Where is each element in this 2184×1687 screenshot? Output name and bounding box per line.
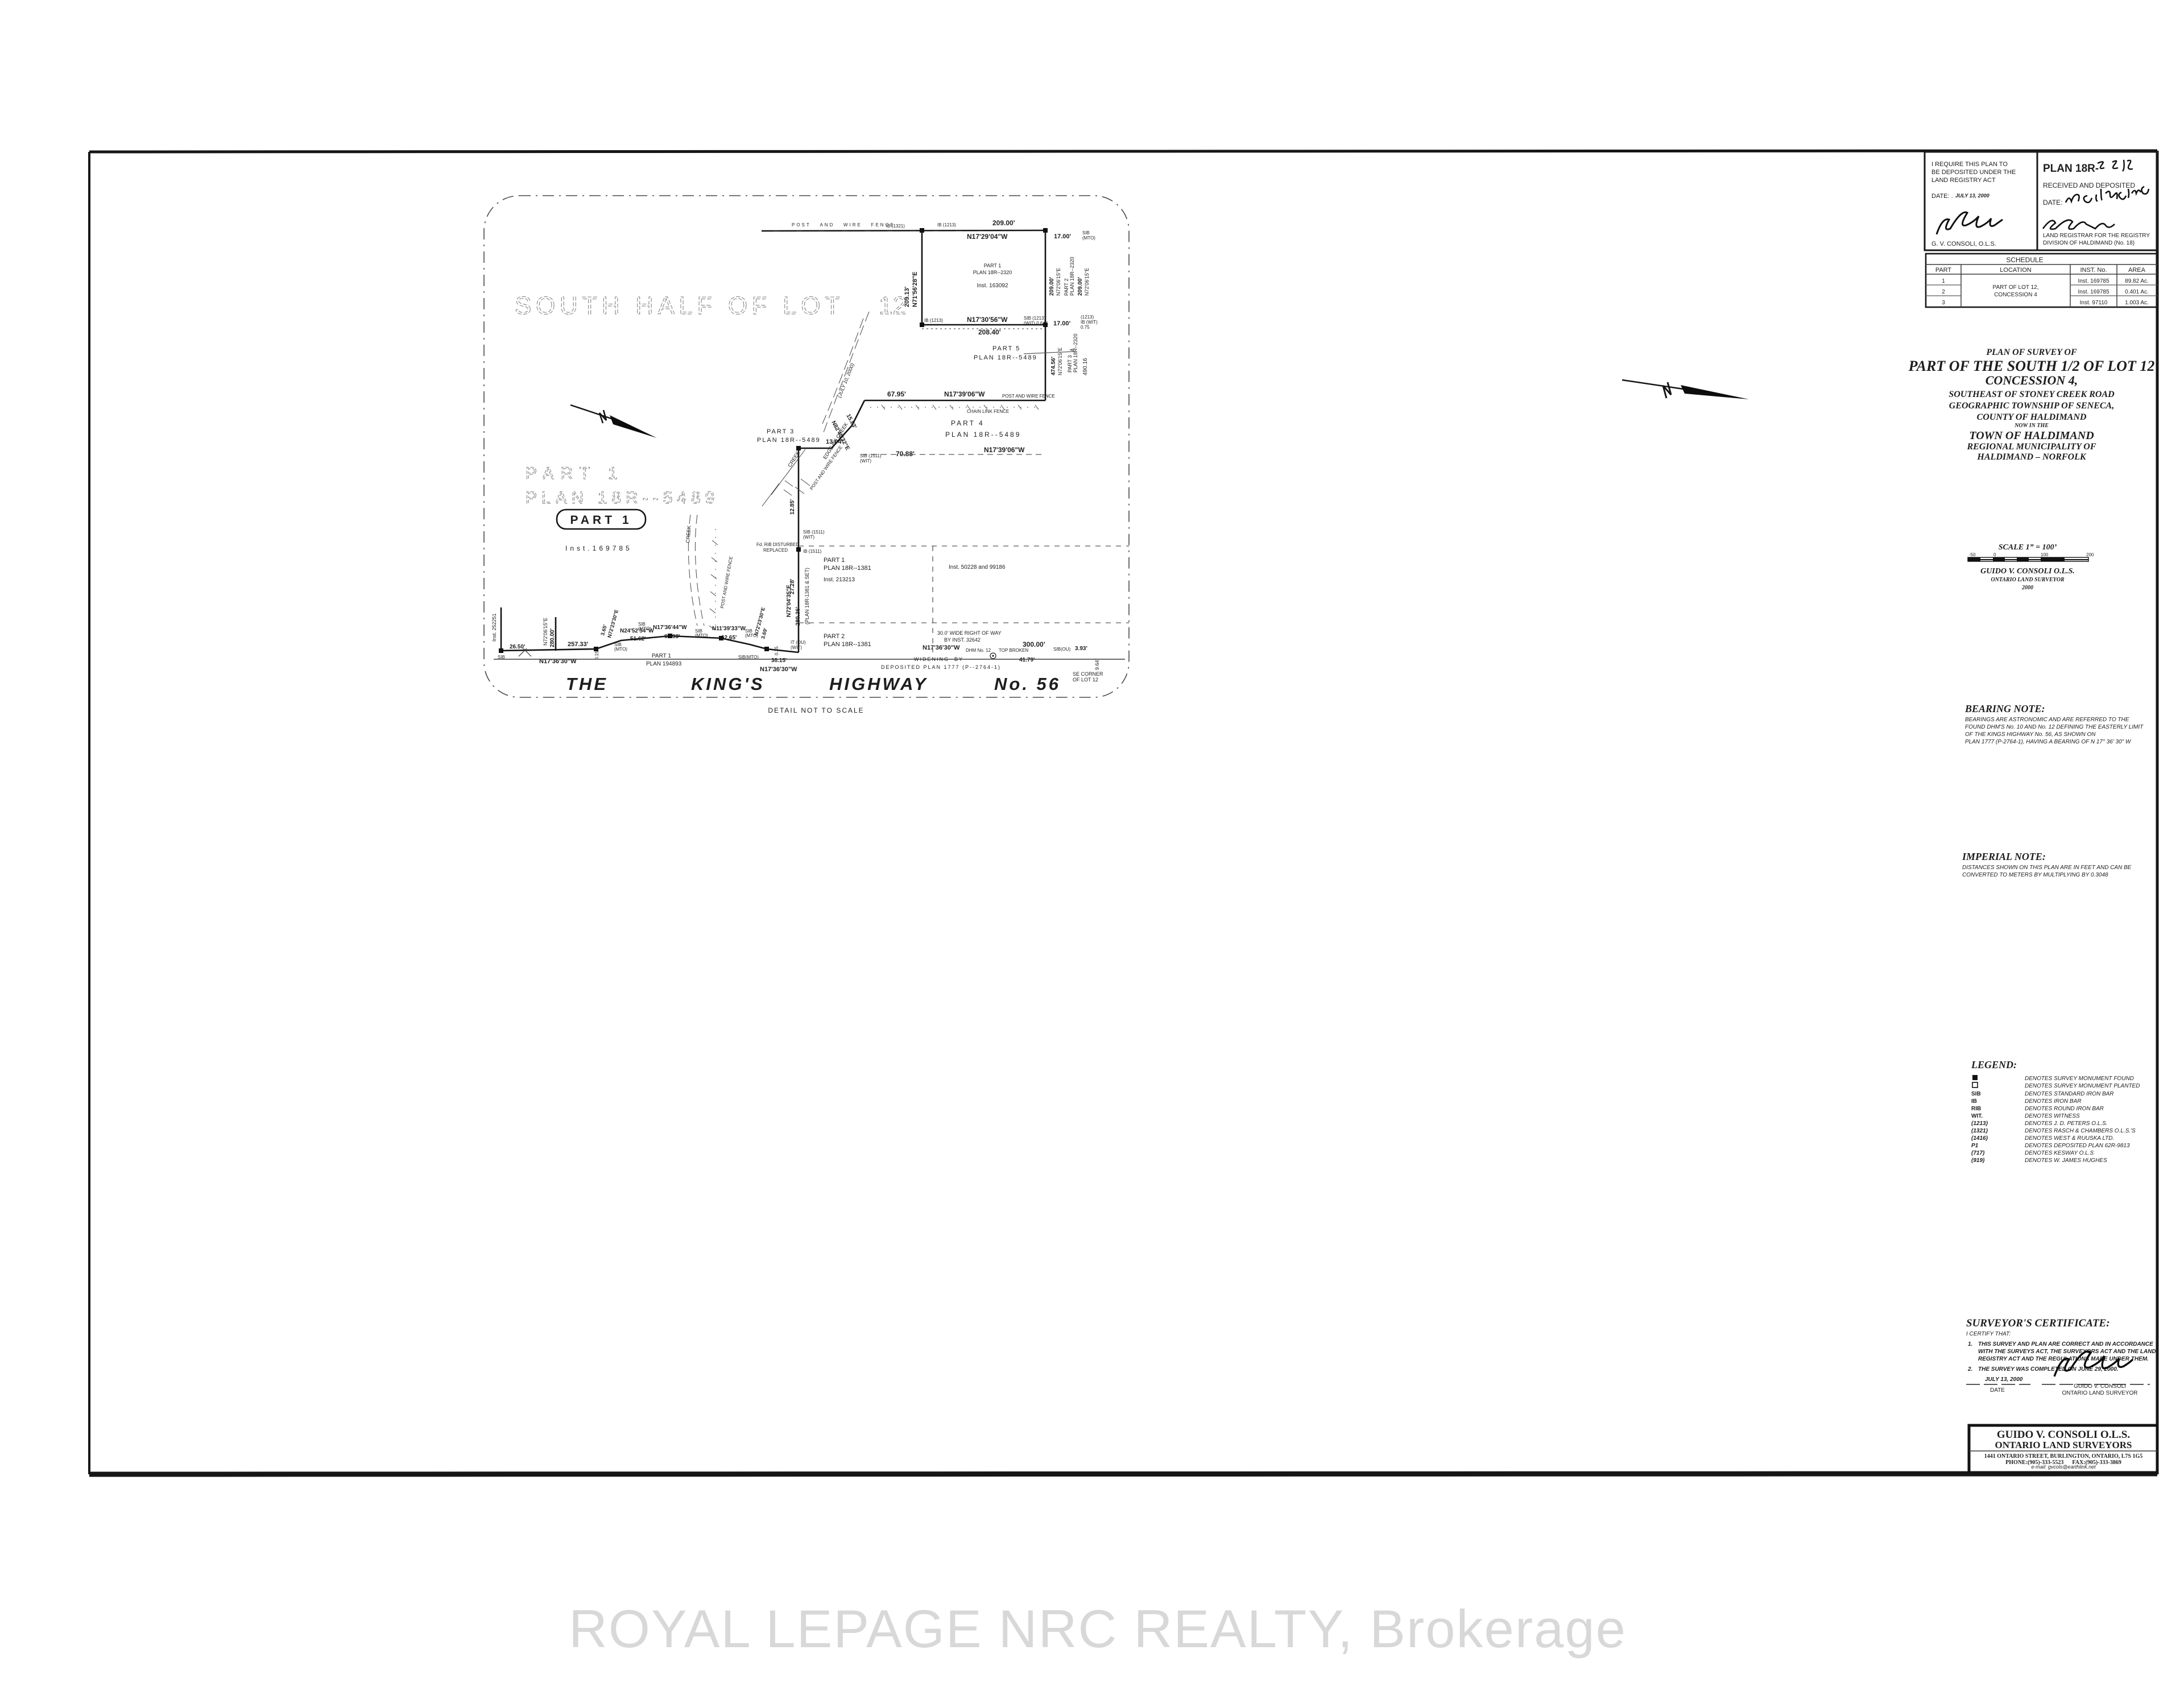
svg-text:9.64': 9.64' bbox=[1094, 659, 1100, 670]
svg-text:AREA: AREA bbox=[2128, 267, 2146, 274]
svg-text:IMPERIAL NOTE:: IMPERIAL NOTE: bbox=[1962, 851, 2046, 862]
svg-text:P1: P1 bbox=[1971, 1143, 1979, 1149]
svg-text:CONCESSION 4,: CONCESSION 4, bbox=[1986, 373, 2078, 387]
svg-text:IT (OU): IT (OU) bbox=[791, 640, 806, 645]
svg-text:PART 1: PART 1 bbox=[526, 464, 624, 483]
svg-text:PART 1: PART 1 bbox=[824, 557, 845, 564]
svg-text:SIB: SIB bbox=[1971, 1091, 1981, 1097]
svg-text:DENOTES W. JAMES HUGHES: DENOTES W. JAMES HUGHES bbox=[2025, 1157, 2107, 1164]
svg-text:NOW IN THE: NOW IN THE bbox=[2014, 423, 2049, 429]
svg-text:DENOTES IRON BAR: DENOTES IRON BAR bbox=[2025, 1098, 2081, 1105]
svg-text:LAND REGISTRAR FOR THE REGISTR: LAND REGISTRAR FOR THE REGISTRY bbox=[2043, 233, 2150, 239]
svg-text:474.56': 474.56' bbox=[1050, 357, 1057, 375]
svg-text:DENOTES WITNESS: DENOTES WITNESS bbox=[2025, 1113, 2080, 1119]
svg-text:WIT.: WIT. bbox=[1971, 1113, 1983, 1119]
svg-text:INST. No.: INST. No. bbox=[2080, 267, 2107, 274]
svg-text:PLAN 18R--2320: PLAN 18R--2320 bbox=[973, 270, 1012, 275]
svg-text:0: 0 bbox=[1993, 552, 1996, 557]
svg-text:THIS SURVEY AND PLAN ARE CORRE: THIS SURVEY AND PLAN ARE CORRECT AND IN … bbox=[1978, 1341, 2153, 1347]
svg-text:REGIONAL MUNICIPALITY OF: REGIONAL MUNICIPALITY OF bbox=[1967, 442, 2096, 452]
svg-text:LAND REGISTRY ACT: LAND REGISTRY ACT bbox=[1931, 177, 1996, 184]
svg-text:N17'39'06"W: N17'39'06"W bbox=[944, 390, 985, 398]
svg-text:PLAN 18R--5489: PLAN 18R--5489 bbox=[526, 489, 719, 507]
svg-text:DENOTES SURVEY MONUMENT FOUND: DENOTES SURVEY MONUMENT FOUND bbox=[2025, 1076, 2134, 1082]
svg-text:SOUTHEAST OF STONEY CREEK ROAD: SOUTHEAST OF STONEY CREEK ROAD bbox=[1949, 390, 2115, 399]
svg-text:ONTARIO LAND SURVEYOR: ONTARIO LAND SURVEYOR bbox=[2062, 1390, 2138, 1396]
svg-text:DENOTES RASCH & CHAMBERS O.L.S: DENOTES RASCH & CHAMBERS O.L.S.'S bbox=[2025, 1128, 2136, 1134]
svg-text:DENOTES DEPOSITED PLAN 62R-981: DENOTES DEPOSITED PLAN 62R-9813 bbox=[2025, 1143, 2130, 1149]
svg-text:PART 3: PART 3 bbox=[767, 428, 795, 435]
svg-text:LEGEND:: LEGEND: bbox=[1971, 1059, 2017, 1070]
svg-text:0.75: 0.75 bbox=[1081, 325, 1090, 330]
svg-text:Inst.169785: Inst.169785 bbox=[565, 544, 632, 552]
svg-text:(MTO): (MTO) bbox=[695, 633, 708, 638]
svg-text:DETAIL NOT TO SCALE: DETAIL NOT TO SCALE bbox=[768, 706, 864, 714]
svg-text:30.0' WIDE RIGHT OF WAY: 30.0' WIDE RIGHT OF WAY bbox=[937, 630, 1002, 636]
svg-text:SIB(OU): SIB(OU) bbox=[1053, 647, 1071, 652]
svg-text:70.88': 70.88' bbox=[896, 450, 915, 458]
svg-text:2.: 2. bbox=[1967, 1366, 1972, 1372]
svg-text:(MTO): (MTO) bbox=[638, 626, 651, 631]
svg-text:257.33': 257.33' bbox=[568, 641, 589, 648]
svg-text:Inst. 163092: Inst. 163092 bbox=[977, 283, 1008, 289]
svg-text:POST AND WIRE FENCE: POST AND WIRE FENCE bbox=[1002, 394, 1055, 399]
svg-text:PART 1: PART 1 bbox=[652, 653, 671, 659]
svg-text:ONTARIO LAND SURVEYOR: ONTARIO LAND SURVEYOR bbox=[1991, 577, 2065, 583]
svg-text:280.00': 280.00' bbox=[549, 629, 556, 647]
svg-text:3: 3 bbox=[1942, 300, 1945, 306]
svg-text:BE DEPOSITED UNDER THE: BE DEPOSITED UNDER THE bbox=[1931, 169, 2016, 176]
svg-text:DENOTES SURVEY MONUMENT PLANTE: DENOTES SURVEY MONUMENT PLANTED bbox=[2025, 1083, 2140, 1089]
svg-text:ROYAL LEPAGE NRC REALTY, Broke: ROYAL LEPAGE NRC REALTY, Brokerage bbox=[569, 1599, 1627, 1659]
svg-text:DENOTES J. D. PETERS O.L.S.: DENOTES J. D. PETERS O.L.S. bbox=[2025, 1120, 2108, 1127]
svg-text:N17'36'44"W: N17'36'44"W bbox=[653, 625, 687, 631]
svg-text:G. V. CONSOLI, O.L.S.: G. V. CONSOLI, O.L.S. bbox=[1931, 241, 1996, 247]
svg-text:WIDENING BY: WIDENING BY bbox=[914, 656, 963, 662]
svg-text:PART 5: PART 5 bbox=[992, 345, 1020, 352]
svg-text:N71'56'28"E: N71'56'28"E bbox=[912, 272, 919, 307]
svg-text:PART 3: PART 3 bbox=[1067, 355, 1073, 373]
svg-text:JULY 13, 2000: JULY 13, 2000 bbox=[1985, 1376, 2023, 1383]
svg-text:N17'36'30"W: N17'36'30"W bbox=[760, 666, 797, 673]
svg-text:DATE: DATE bbox=[1990, 1387, 2005, 1394]
svg-text:208.40': 208.40' bbox=[978, 328, 1001, 336]
svg-text:SOUTH HALF OF LOT: SOUTH HALF OF LOT bbox=[515, 292, 850, 320]
svg-text:Inst. 213213: Inst. 213213 bbox=[824, 577, 855, 583]
svg-text:12.85': 12.85' bbox=[789, 499, 796, 515]
svg-text:Inst. 169785: Inst. 169785 bbox=[2078, 278, 2109, 284]
svg-text:PLAN 18R--5489: PLAN 18R--5489 bbox=[974, 354, 1037, 361]
svg-text:THE SURVEY WAS COMPLETED ON JU: THE SURVEY WAS COMPLETED ON JUNE 29, 200… bbox=[1978, 1366, 2119, 1372]
svg-text:CHAIN LINK FENCE: CHAIN LINK FENCE bbox=[967, 409, 1009, 414]
svg-text:62.65': 62.65' bbox=[721, 635, 737, 641]
svg-text:PART 2: PART 2 bbox=[1064, 278, 1069, 296]
svg-text:e-mail: gvcols@earthlink.net: e-mail: gvcols@earthlink.net bbox=[2031, 1464, 2096, 1470]
svg-text:N72'06'15"E: N72'06'15"E bbox=[1056, 268, 1061, 296]
svg-text:SURVEYOR'S CERTIFICATE:: SURVEYOR'S CERTIFICATE: bbox=[1966, 1317, 2110, 1329]
svg-text:Inst. 169785: Inst. 169785 bbox=[2078, 289, 2109, 295]
svg-text:RECEIVED AND DEPOSITED: RECEIVED AND DEPOSITED bbox=[2043, 181, 2135, 189]
svg-text:(WIT): (WIT) bbox=[803, 535, 814, 540]
svg-text:POST AND WIRE FENCE: POST AND WIRE FENCE bbox=[792, 222, 895, 228]
svg-text:PLAN 18R--5489: PLAN 18R--5489 bbox=[757, 437, 821, 444]
svg-text:38.15': 38.15' bbox=[771, 658, 787, 664]
svg-text:KING'S: KING'S bbox=[691, 674, 765, 694]
svg-text:SIB (1511): SIB (1511) bbox=[803, 530, 825, 535]
svg-text:SCHEDULE: SCHEDULE bbox=[2006, 256, 2043, 264]
svg-text:PART OF LOT 12,: PART OF LOT 12, bbox=[1993, 284, 2039, 291]
svg-text:(WIT): (WIT) bbox=[791, 645, 802, 650]
svg-text:DEPOSITED PLAN 1777 (P--2764-1: DEPOSITED PLAN 1777 (P--2764-1) bbox=[881, 664, 1001, 670]
svg-text:IB: IB bbox=[1971, 1098, 1977, 1105]
svg-text:0.401 Ac.: 0.401 Ac. bbox=[2125, 289, 2149, 295]
svg-text:Inst. 252251: Inst. 252251 bbox=[491, 613, 497, 642]
svg-text:DHM No. 12: DHM No. 12 bbox=[966, 648, 991, 653]
svg-text:Fd. RiB DISTURBED: Fd. RiB DISTURBED bbox=[756, 542, 799, 547]
svg-text:2000: 2000 bbox=[2021, 585, 2033, 591]
svg-text:IB (WIT): IB (WIT) bbox=[1081, 320, 1098, 325]
svg-text:(PLAN 18R-1381 & SET): (PLAN 18R-1381 & SET) bbox=[804, 568, 810, 625]
svg-text:51.62': 51.62' bbox=[630, 636, 646, 642]
svg-text:PART OF THE SOUTH 1/2 OF LOT 1: PART OF THE SOUTH 1/2 OF LOT 12 bbox=[1908, 358, 2155, 374]
svg-text:TOWN OF HALDIMAND: TOWN OF HALDIMAND bbox=[1969, 429, 2094, 442]
svg-text:TOP BROKEN: TOP BROKEN bbox=[999, 648, 1028, 653]
svg-text:N11'39'33"W: N11'39'33"W bbox=[712, 626, 746, 632]
svg-text:26.50': 26.50' bbox=[510, 644, 525, 650]
svg-text:(MTO): (MTO) bbox=[614, 647, 627, 652]
svg-text:SE CORNER: SE CORNER bbox=[1073, 671, 1103, 677]
svg-text:SIB: SIB bbox=[498, 655, 505, 660]
svg-text:41.79': 41.79' bbox=[1019, 657, 1035, 663]
svg-text:OF THE KINGS HIGHWAY No. 56, A: OF THE KINGS HIGHWAY No. 56, AS SHOWN ON bbox=[1965, 731, 2096, 738]
svg-text:OF LOT 12: OF LOT 12 bbox=[1073, 677, 1098, 683]
svg-text:GUIDO V. CONSOLI O.L.S.: GUIDO V. CONSOLI O.L.S. bbox=[1997, 1429, 2130, 1441]
svg-text:GUIDO V. CONSOLI: GUIDO V. CONSOLI bbox=[2074, 1383, 2126, 1390]
svg-text:300.00': 300.00' bbox=[1023, 640, 1045, 648]
svg-text:HALDIMAND – NORFOLK: HALDIMAND – NORFOLK bbox=[1976, 452, 2086, 462]
svg-text:ONTARIO LAND SURVEYORS: ONTARIO LAND SURVEYORS bbox=[1995, 1440, 2132, 1450]
svg-text:89.82 Ac.: 89.82 Ac. bbox=[2125, 278, 2149, 284]
svg-text:17.00': 17.00' bbox=[1054, 233, 1072, 240]
svg-text:PART 1: PART 1 bbox=[984, 263, 1002, 268]
svg-text:N72'04'35"E: N72'04'35"E bbox=[786, 585, 792, 617]
svg-text:CONCESSION 4: CONCESSION 4 bbox=[1994, 292, 2037, 298]
svg-text:PART 2: PART 2 bbox=[824, 633, 845, 640]
svg-text:REPLACED: REPLACED bbox=[763, 548, 788, 553]
svg-text:(1416): (1416) bbox=[1971, 1135, 1988, 1142]
svg-text:CONVERTED TO METERS BY MULTIPL: CONVERTED TO METERS BY MULTIPLYING BY 0.… bbox=[1962, 872, 2108, 878]
svg-text:HIGHWAY: HIGHWAY bbox=[829, 674, 928, 694]
svg-text:DENOTES ROUND IRON BAR: DENOTES ROUND IRON BAR bbox=[2025, 1106, 2104, 1112]
svg-text:IB (1511): IB (1511) bbox=[803, 549, 822, 554]
svg-text:3.93': 3.93' bbox=[1075, 646, 1087, 652]
svg-text:N17'39'06"W: N17'39'06"W bbox=[984, 446, 1025, 454]
svg-text:209.00': 209.00' bbox=[1049, 277, 1055, 296]
svg-text:DENOTES WEST & RUUSKA LTD.: DENOTES WEST & RUUSKA LTD. bbox=[2025, 1135, 2114, 1142]
svg-text:PART 4: PART 4 bbox=[951, 419, 985, 427]
svg-text:GUIDO V. CONSOLI O.L.S.: GUIDO V. CONSOLI O.L.S. bbox=[1980, 567, 2075, 576]
svg-text:(WIT): (WIT) bbox=[860, 458, 871, 464]
svg-text:N72'06'15"E: N72'06'15"E bbox=[543, 618, 548, 646]
svg-text:I CERTIFY THAT:: I CERTIFY THAT: bbox=[1966, 1331, 2011, 1337]
svg-text:200: 200 bbox=[2086, 552, 2094, 557]
svg-text:(919): (919) bbox=[1971, 1157, 1985, 1164]
svg-text:N17'36'30"W: N17'36'30"W bbox=[923, 644, 960, 651]
svg-text:0.15: 0.15 bbox=[594, 651, 599, 660]
svg-text:RIB: RIB bbox=[1971, 1106, 1981, 1112]
svg-text:(MTO): (MTO) bbox=[1082, 235, 1095, 241]
svg-text:2: 2 bbox=[1942, 289, 1945, 295]
svg-text:17.00': 17.00' bbox=[1053, 320, 1071, 327]
svg-text:SIB (1213): SIB (1213) bbox=[1024, 316, 1046, 321]
svg-text:SIB: SIB bbox=[1082, 230, 1090, 235]
svg-text:I REQUIRE THIS PLAN TO: I REQUIRE THIS PLAN TO bbox=[1931, 161, 2008, 168]
svg-text:PLAN 194893: PLAN 194893 bbox=[646, 661, 682, 667]
svg-text:12: 12 bbox=[879, 292, 907, 320]
svg-text:-50: -50 bbox=[1969, 552, 1976, 557]
svg-text:(1213): (1213) bbox=[1971, 1120, 1988, 1127]
svg-text:PLAN 1777 (P-2764-1), HAVING A: PLAN 1777 (P-2764-1), HAVING A BEARING O… bbox=[1965, 739, 2132, 745]
svg-text:DISTANCES SHOWN ON THIS PLAN A: DISTANCES SHOWN ON THIS PLAN ARE IN FEET… bbox=[1962, 865, 2132, 871]
svg-text:IB (1321): IB (1321) bbox=[886, 224, 905, 229]
svg-text:SIB (1511): SIB (1511) bbox=[860, 453, 882, 458]
svg-text:PLAN 18R--2320: PLAN 18R--2320 bbox=[1073, 333, 1078, 373]
svg-text:(1213): (1213) bbox=[1081, 315, 1094, 320]
svg-text:N17'29'04"W: N17'29'04"W bbox=[967, 233, 1008, 241]
svg-text:PLAN 18R--1381: PLAN 18R--1381 bbox=[824, 641, 871, 648]
svg-text:209.00': 209.00' bbox=[992, 219, 1015, 227]
svg-text:(1321): (1321) bbox=[1971, 1128, 1988, 1134]
svg-text:BEARINGS ARE ASTRONOMIC AND AR: BEARINGS ARE ASTRONOMIC AND ARE REFERRED… bbox=[1965, 717, 2129, 723]
svg-text:LOCATION: LOCATION bbox=[2000, 267, 2031, 274]
svg-text:COUNTY OF HALDIMAND: COUNTY OF HALDIMAND bbox=[1977, 412, 2087, 422]
svg-text:PLAN 18R-: PLAN 18R- bbox=[2043, 163, 2099, 175]
svg-text:No. 56: No. 56 bbox=[994, 674, 1061, 694]
svg-text:WITH THE SURVEYS ACT, THE SURV: WITH THE SURVEYS ACT, THE SURVEYORS ACT … bbox=[1978, 1349, 2156, 1355]
svg-text:Inst. 50228 and 99186: Inst. 50228 and 99186 bbox=[949, 564, 1006, 570]
svg-text:0.35: 0.35 bbox=[774, 646, 779, 655]
svg-text:IB (1213): IB (1213) bbox=[924, 318, 943, 323]
svg-text:DIVISION OF HALDIMAND (No. 18): DIVISION OF HALDIMAND (No. 18) bbox=[2043, 240, 2135, 246]
svg-text:PART: PART bbox=[1935, 267, 1952, 274]
svg-text:BY INST. 32642: BY INST. 32642 bbox=[944, 637, 981, 643]
svg-text:GEOGRAPHIC TOWNSHIP OF SENECA,: GEOGRAPHIC TOWNSHIP OF SENECA, bbox=[1949, 401, 2114, 411]
svg-text:DATE:: DATE: bbox=[2043, 199, 2062, 206]
svg-text:100: 100 bbox=[2041, 552, 2049, 557]
svg-text:BEARING NOTE:: BEARING NOTE: bbox=[1964, 703, 2045, 714]
svg-text:1: 1 bbox=[1942, 278, 1945, 284]
svg-text:DENOTES KESWAY O.L.S: DENOTES KESWAY O.L.S bbox=[2025, 1150, 2094, 1156]
svg-text:PART 1: PART 1 bbox=[570, 514, 632, 527]
svg-text:1.: 1. bbox=[1968, 1341, 1972, 1347]
svg-text:DATE: .: DATE: . bbox=[1931, 193, 1953, 200]
svg-text:1.003 Ac.: 1.003 Ac. bbox=[2125, 300, 2149, 306]
svg-text:(717): (717) bbox=[1971, 1150, 1985, 1156]
svg-text:N72'06'15"E: N72'06'15"E bbox=[1057, 348, 1063, 375]
svg-text:67.95': 67.95' bbox=[887, 390, 906, 398]
svg-text:PLAN 18R--2320: PLAN 18R--2320 bbox=[1069, 257, 1075, 296]
svg-text:PLAN OF SURVEY OF: PLAN OF SURVEY OF bbox=[1986, 348, 2077, 357]
svg-text:PLAN 18R--5489: PLAN 18R--5489 bbox=[945, 431, 1021, 439]
svg-text:N72'06'15"E: N72'06'15"E bbox=[1084, 268, 1090, 296]
svg-text:209.13': 209.13' bbox=[904, 286, 911, 307]
svg-text:N17'30'56"W: N17'30'56"W bbox=[967, 316, 1008, 324]
svg-text:490.16: 490.16 bbox=[1082, 358, 1089, 375]
svg-text:Inst. 97110: Inst. 97110 bbox=[2080, 300, 2108, 306]
svg-text:THE: THE bbox=[566, 674, 608, 694]
svg-text:209.00': 209.00' bbox=[1077, 277, 1083, 296]
svg-text:FOUND DHM'S No. 10 AND No. 12: FOUND DHM'S No. 10 AND No. 12 DEFINING T… bbox=[1965, 724, 2144, 730]
svg-text:1441 ONTARIO STREET, BURLINGTO: 1441 ONTARIO STREET, BURLINGTON, ONTARIO… bbox=[1984, 1453, 2142, 1459]
svg-text:DENOTES STANDARD IRON BAR: DENOTES STANDARD IRON BAR bbox=[2025, 1091, 2114, 1097]
svg-text:PLAN 18R--1381: PLAN 18R--1381 bbox=[824, 565, 871, 572]
svg-text:JULY 13, 2000: JULY 13, 2000 bbox=[1955, 193, 1989, 199]
svg-text:IB (1213): IB (1213) bbox=[937, 222, 956, 228]
svg-text:SCALE 1” = 100’: SCALE 1” = 100’ bbox=[1999, 543, 2057, 552]
